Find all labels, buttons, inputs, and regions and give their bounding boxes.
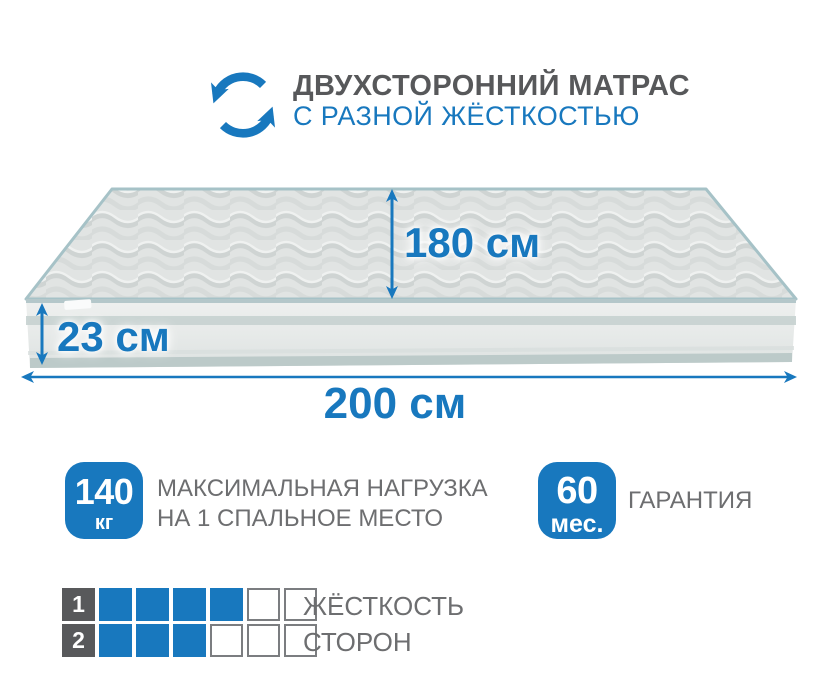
firmness-cell-empty: [247, 624, 280, 657]
firmness-cell-filled: [136, 624, 169, 657]
firmness-cell-filled: [99, 624, 132, 657]
firmness-cell-empty: [210, 624, 243, 657]
depth-dimension-label: 180 см: [404, 219, 540, 267]
length-dimension-label: 200 см: [295, 379, 495, 429]
firmness-label-line1: ЖЁСТКОСТЬ: [303, 588, 464, 624]
warranty-value: 60: [538, 472, 616, 510]
firmness-labels: ЖЁСТКОСТЬ СТОРОН: [303, 588, 464, 660]
firmness-cell-filled: [173, 588, 206, 621]
max-load-value: 140: [65, 474, 143, 510]
side-number: 2: [62, 624, 95, 657]
max-load-description: МАКСИМАЛЬНАЯ НАГРУЗКА НА 1 СПАЛЬНОЕ МЕСТ…: [157, 474, 488, 534]
side-number: 1: [62, 588, 95, 621]
mattress-illustration: [0, 0, 816, 430]
firmness-label-line2: СТОРОН: [303, 624, 464, 660]
firmness-row: 2: [62, 624, 317, 657]
height-dimension-label: 23 см: [57, 313, 170, 361]
firmness-rows: 12: [62, 588, 317, 660]
warranty-badge: 60 мес.: [538, 462, 616, 539]
mattress-label-tag: [64, 299, 92, 310]
firmness-cell-filled: [99, 588, 132, 621]
warranty-description: ГАРАНТИЯ: [628, 486, 752, 516]
firmness-row: 1: [62, 588, 317, 621]
firmness-cell-filled: [173, 624, 206, 657]
firmness-cell-filled: [136, 588, 169, 621]
max-load-unit: кг: [65, 513, 143, 533]
max-load-badge: 140 кг: [65, 462, 143, 539]
max-load-line2: НА 1 СПАЛЬНОЕ МЕСТО: [157, 504, 488, 534]
product-infographic: ДВУХСТОРОННИЙ МАТРАС С РАЗНОЙ ЖЁСТКОСТЬЮ: [0, 0, 816, 700]
firmness-cell-filled: [210, 588, 243, 621]
firmness-cell-empty: [247, 588, 280, 621]
max-load-line1: МАКСИМАЛЬНАЯ НАГРУЗКА: [157, 474, 488, 504]
warranty-unit: мес.: [538, 512, 616, 537]
